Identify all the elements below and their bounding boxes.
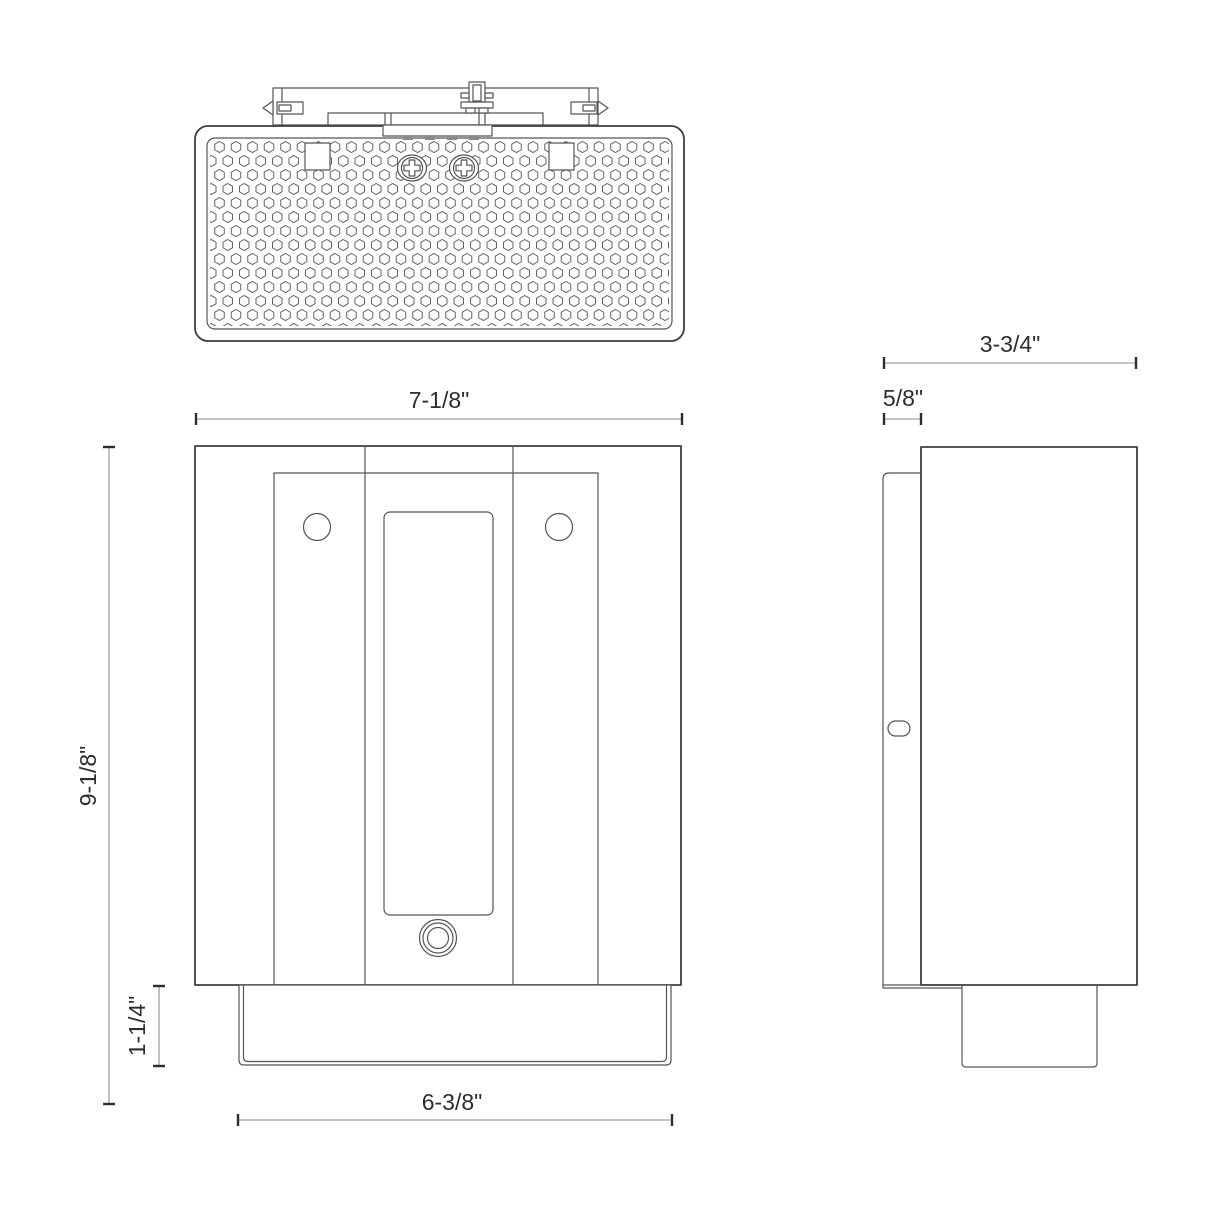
side-body-outline [921,447,1137,985]
spring-flange-right [598,101,608,115]
dimension-bottom-height: 1-1/4" [124,986,165,1066]
front-view [195,446,681,1065]
keyhole-slot-right [549,143,574,170]
screw-foot-left [466,108,475,113]
lower-plate [383,125,492,136]
dimension-side-depth-label: 3-3/4" [980,331,1041,357]
dimension-backplate-thickness-label: 5/8" [883,385,923,411]
mounting-bracket [263,82,608,125]
top-view [195,82,684,341]
dimension-bottom-height-label: 1-1/4" [124,996,150,1057]
screw-foot-right [479,108,488,113]
drawing-canvas: 7-1/8" 9-1/8" 1-1/4" 6-3/8" 3-3/4" [0,0,1214,1214]
side-backplate [883,473,962,988]
dimension-front-height: 9-1/8" [75,447,115,1104]
bracket-bar [273,88,598,125]
keyhole-slot-left [305,143,330,170]
mounting-hole-left [304,514,331,541]
diffuser-outline [239,985,671,1065]
phillips-screw-left [398,155,427,181]
dimension-backplate-thickness: 5/8" [883,385,923,425]
plate-tab [403,136,413,140]
plate-tab [447,136,457,140]
spring-flange-left [263,101,273,115]
bracket-clip-left [277,102,303,114]
perforation-pattern [210,141,669,326]
technical-drawing: 7-1/8" 9-1/8" 1-1/4" 6-3/8" 3-3/4" [0,0,1214,1214]
dimension-bottom-width: 6-3/8" [238,1089,672,1126]
side-view [883,447,1137,1067]
bracket-clip-right [571,102,597,114]
knob-outer-ring [420,920,457,957]
screw-wing-left [461,93,469,98]
plate-tab [425,136,435,140]
front-inset-panel [274,473,598,985]
front-body-outline [195,446,681,985]
screw-wing-right [485,93,493,98]
plate-tab [469,136,479,140]
dimension-front-width: 7-1/8" [196,387,682,425]
phillips-screw-right [450,155,479,181]
mounting-hole-right [546,514,573,541]
side-diffuser [962,985,1097,1067]
dimension-front-width-label: 7-1/8" [409,387,470,413]
backplate-slot [888,721,910,736]
screw-base-plate [461,102,493,108]
dimension-side-depth: 3-3/4" [884,331,1136,369]
front-diffuser [239,985,671,1065]
dimension-front-height-label: 9-1/8" [75,746,101,807]
dimension-bottom-width-label: 6-3/8" [422,1089,483,1115]
socket-knob [420,920,457,957]
center-window [384,512,493,915]
